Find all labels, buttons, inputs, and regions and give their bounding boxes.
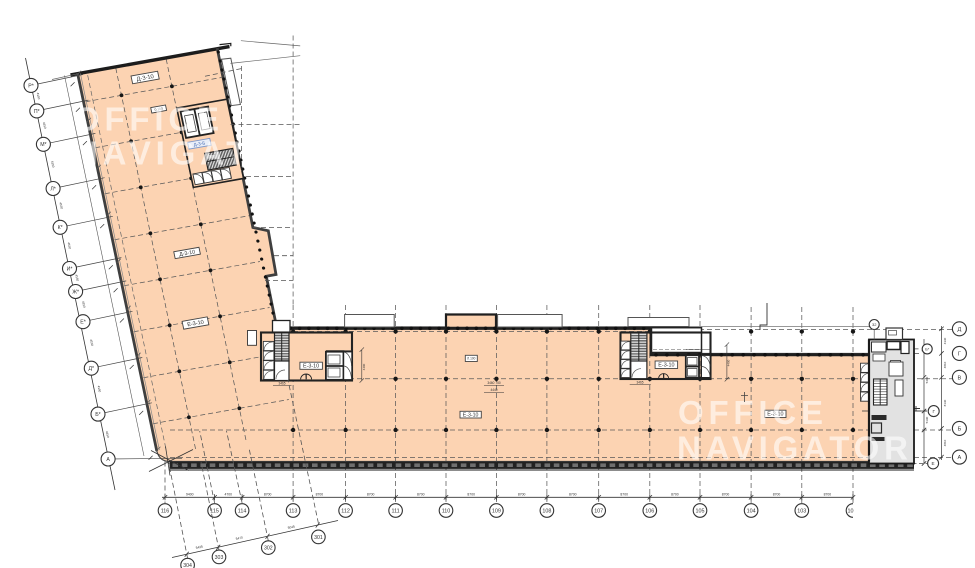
svg-text:8700: 8700 — [569, 493, 577, 497]
svg-text:5190: 5190 — [925, 416, 929, 423]
svg-text:8700: 8700 — [316, 493, 324, 497]
svg-text:32: 32 — [872, 322, 877, 327]
svg-text:304: 304 — [183, 563, 192, 568]
svg-text:8700: 8700 — [620, 493, 628, 497]
svg-text:108: 108 — [542, 508, 551, 514]
svg-text:109: 109 — [492, 508, 501, 514]
svg-text:3465: 3465 — [636, 380, 643, 384]
svg-text:К*: К* — [58, 225, 63, 231]
svg-text:Г: Г — [958, 351, 961, 357]
svg-text:111: 111 — [391, 508, 399, 514]
svg-text:Л.100: Л.100 — [467, 357, 476, 361]
svg-text:106: 106 — [645, 508, 654, 514]
svg-text:Л*: Л* — [50, 186, 55, 192]
svg-text:5400: 5400 — [925, 376, 929, 383]
svg-text:301: 301 — [314, 535, 323, 541]
svg-text:3460 750: 3460 750 — [487, 381, 501, 385]
svg-text:Б: Б — [958, 426, 962, 432]
svg-text:П*: П* — [34, 109, 40, 115]
svg-text:4330: 4330 — [943, 337, 947, 344]
svg-text:М*: М* — [40, 142, 46, 148]
svg-text:8700: 8700 — [518, 493, 526, 497]
svg-text:103: 103 — [797, 508, 806, 514]
svg-text:OFFICE: OFFICE — [74, 101, 224, 138]
svg-text:302: 302 — [264, 546, 273, 552]
svg-text:4810: 4810 — [943, 361, 947, 368]
svg-text:А: А — [106, 457, 110, 463]
svg-text:Б*: Б* — [925, 347, 929, 351]
svg-text:8700: 8700 — [824, 493, 832, 497]
svg-text:9400: 9400 — [186, 493, 194, 497]
svg-text:4810: 4810 — [943, 439, 947, 446]
svg-text:Е-3-10: Е-3-10 — [658, 363, 674, 369]
svg-text:8700: 8700 — [417, 493, 425, 497]
svg-text:OFFICE: OFFICE — [678, 394, 828, 431]
svg-text:И*: И* — [67, 266, 73, 272]
svg-text:116: 116 — [161, 508, 170, 514]
svg-text:Б*: Б* — [95, 412, 100, 418]
svg-text:Е*: Е* — [80, 320, 85, 326]
svg-text:107: 107 — [594, 508, 603, 514]
svg-text:Е-3-10: Е-3-10 — [303, 364, 319, 370]
svg-text:8700: 8700 — [367, 493, 375, 497]
svg-text:8700: 8700 — [722, 493, 730, 497]
svg-text:NAVIGATOR: NAVIGATOR — [677, 430, 913, 467]
svg-text:4400: 4400 — [362, 363, 366, 370]
svg-text:3465: 3465 — [278, 381, 285, 385]
svg-text:8700: 8700 — [671, 493, 679, 497]
svg-text:8700: 8700 — [264, 493, 272, 497]
svg-text:Д: Д — [958, 327, 962, 333]
svg-text:4440: 4440 — [490, 388, 497, 392]
svg-text:8130: 8130 — [943, 399, 947, 406]
svg-text:303: 303 — [215, 555, 224, 561]
svg-text:113: 113 — [289, 508, 298, 514]
svg-text:4400: 4400 — [727, 359, 731, 366]
svg-text:8700: 8700 — [467, 493, 475, 497]
svg-text:115: 115 — [210, 508, 219, 514]
svg-text:8700: 8700 — [773, 493, 781, 497]
svg-text:104: 104 — [747, 508, 756, 514]
svg-text:110: 110 — [442, 508, 451, 514]
svg-text:114: 114 — [238, 508, 247, 514]
svg-text:Д*: Д* — [89, 366, 95, 372]
svg-text:4700: 4700 — [225, 493, 233, 497]
svg-text:А: А — [958, 455, 962, 461]
svg-text:112: 112 — [341, 508, 350, 514]
svg-text:Р*: Р* — [28, 83, 33, 89]
svg-text:Е-3-10: Е-3-10 — [463, 412, 479, 418]
svg-text:105: 105 — [696, 508, 705, 514]
svg-text:10: 10 — [848, 509, 854, 515]
svg-text:NAVIGATOR: NAVIGATOR — [74, 135, 310, 172]
svg-text:Е: Е — [932, 461, 935, 466]
svg-text:В: В — [958, 375, 962, 381]
svg-text:Ж*: Ж* — [72, 289, 79, 295]
